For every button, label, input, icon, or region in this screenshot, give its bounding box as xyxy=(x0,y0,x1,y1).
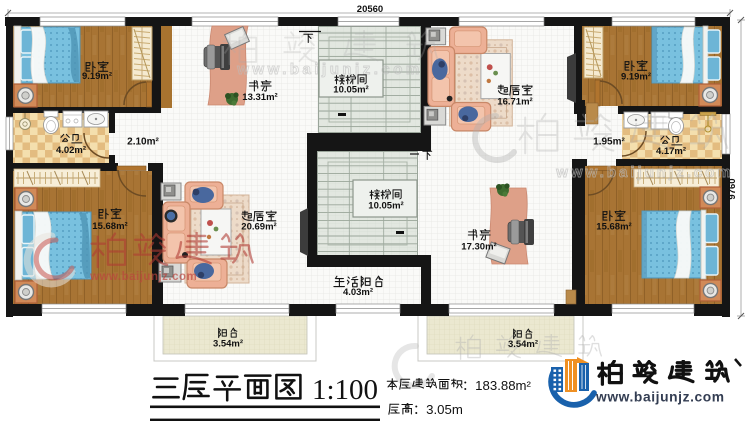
svg-text:www.baijunjz.com: www.baijunjz.com xyxy=(89,271,197,283)
svg-text:9.19m²: 9.19m² xyxy=(82,71,112,82)
svg-text:3.54m²: 3.54m² xyxy=(213,339,243,350)
svg-text:13.31m²: 13.31m² xyxy=(242,92,277,103)
svg-text:20.69m²: 20.69m² xyxy=(241,222,276,233)
svg-text:1:100: 1:100 xyxy=(312,374,378,406)
svg-text:20560: 20560 xyxy=(357,4,383,15)
svg-text:4.17m²: 4.17m² xyxy=(656,146,686,157)
svg-text:9760: 9760 xyxy=(727,178,738,199)
svg-text:16.71m²: 16.71m² xyxy=(497,97,532,108)
svg-text:www.baijunjz.com: www.baijunjz.com xyxy=(236,61,422,78)
svg-text:17.30m²: 17.30m² xyxy=(461,242,496,253)
svg-text:www.baijunjz.com: www.baijunjz.com xyxy=(595,390,725,405)
svg-text:4.03m²: 4.03m² xyxy=(343,287,373,298)
svg-text:www.baijunjz.com: www.baijunjz.com xyxy=(555,164,733,181)
svg-text:4.02m²: 4.02m² xyxy=(56,145,86,156)
svg-text:：183.88m²: ：183.88m² xyxy=(462,378,532,393)
svg-text:2.10m²: 2.10m² xyxy=(127,137,159,148)
svg-text:10.05m²: 10.05m² xyxy=(333,85,368,96)
svg-text:9.19m²: 9.19m² xyxy=(621,72,651,83)
svg-text:15.68m²: 15.68m² xyxy=(596,222,631,233)
svg-text:1.95m²: 1.95m² xyxy=(593,137,625,148)
svg-text:：3.05m: ：3.05m xyxy=(413,402,463,417)
svg-text:3.54m²: 3.54m² xyxy=(508,339,538,350)
svg-text:15.68m²: 15.68m² xyxy=(92,221,127,232)
svg-text:10.05m²: 10.05m² xyxy=(368,201,403,212)
